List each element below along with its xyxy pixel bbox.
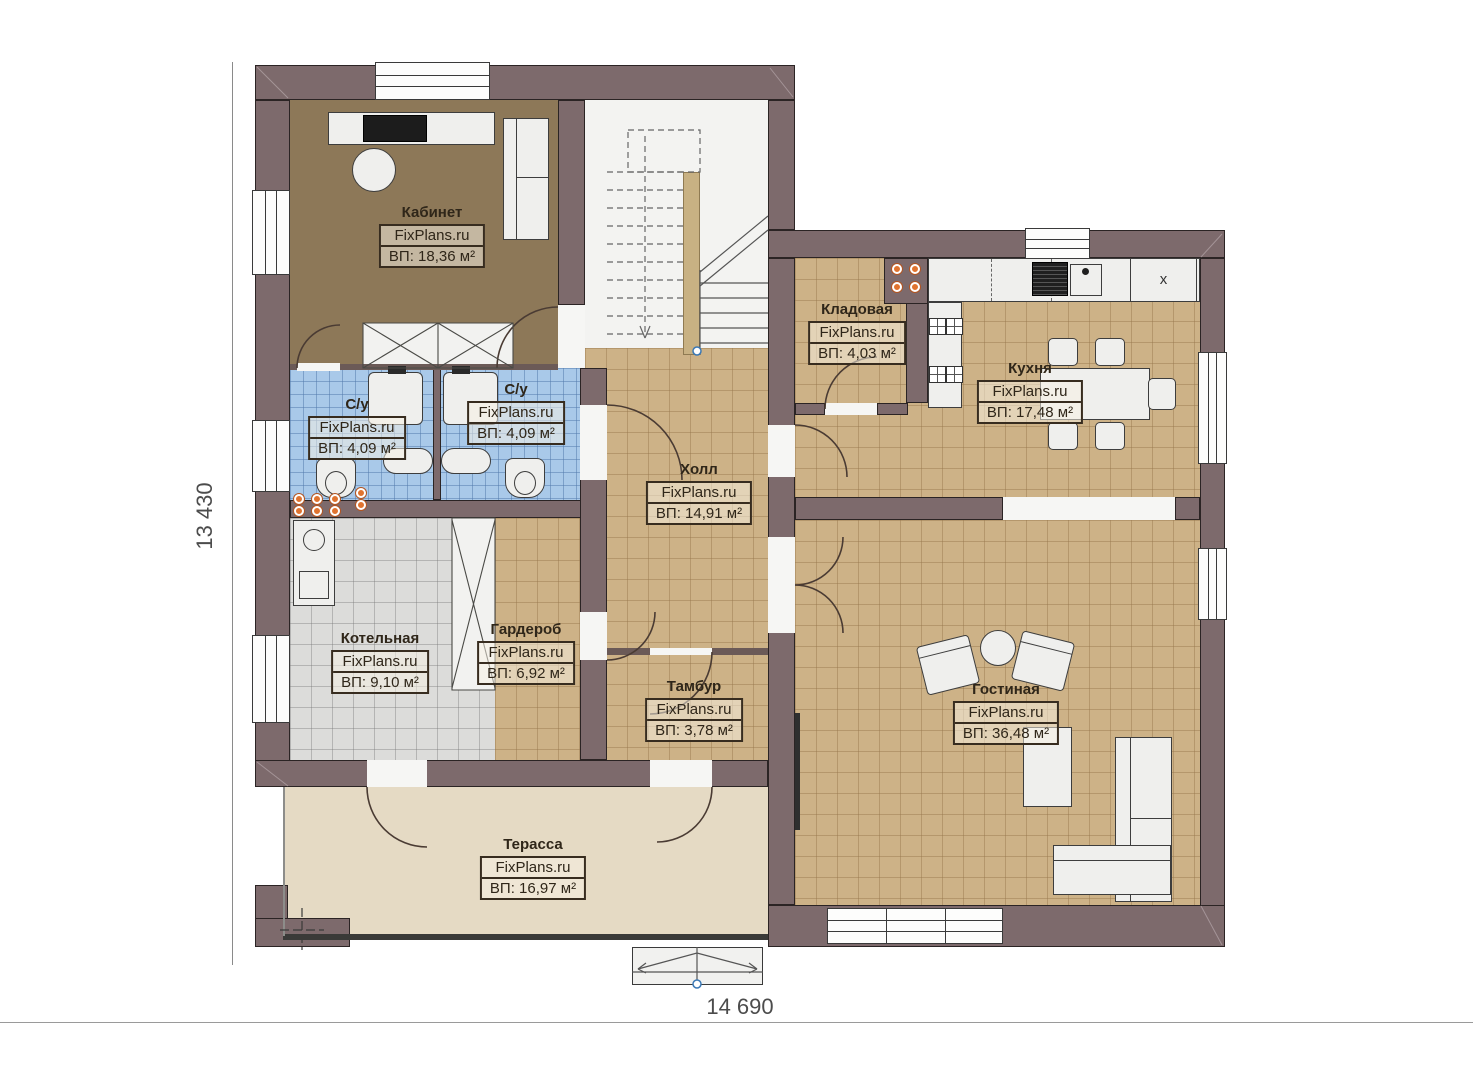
hall-living-door-opening	[768, 537, 795, 633]
room-name: Кухня	[977, 360, 1083, 377]
room-label-office: Кабинет FixPlans.ru ВП: 18,36 м²	[379, 204, 485, 268]
valve-dot	[294, 494, 304, 504]
valve-dot	[356, 500, 366, 510]
valve-dot	[330, 506, 340, 516]
room-info-box: FixPlans.ru ВП: 17,48 м²	[977, 380, 1083, 424]
sofa-bottom	[1053, 845, 1171, 895]
valve-dot	[356, 488, 366, 498]
wall-stair-right-exterior	[768, 100, 795, 230]
wall-storage-bottom-a	[795, 403, 825, 415]
fridge-symbol: x	[1160, 271, 1168, 288]
watermark: FixPlans.ru	[333, 652, 427, 671]
office-sofa	[503, 118, 549, 240]
wall-office-bath-thin-b	[340, 364, 558, 370]
vestibule-door-opening	[650, 648, 712, 655]
boiler-unit	[293, 520, 335, 606]
room-info-box: FixPlans.ru ВП: 3,78 м²	[645, 698, 743, 742]
wall-kitchen-living-a	[795, 497, 1003, 520]
bath2-door-opening	[580, 405, 607, 480]
valve-dot	[330, 494, 340, 504]
room-info-box: FixPlans.ru ВП: 4,03 м²	[808, 321, 906, 365]
toilet-1	[316, 458, 356, 498]
kitchen-living-opening	[1003, 497, 1175, 520]
burner-icon	[892, 264, 902, 274]
room-name: Холл	[646, 461, 752, 478]
wall-office-bath-thin-a	[290, 364, 297, 370]
room-label-vestibule: Тамбур FixPlans.ru ВП: 3,78 м²	[645, 678, 743, 742]
room-area: ВП: 6,92 м²	[479, 662, 573, 683]
watermark: FixPlans.ru	[647, 700, 741, 719]
left-dimension-line	[232, 62, 233, 965]
wardrobe-door-opening	[580, 612, 607, 660]
room-label-hall: Холл FixPlans.ru ВП: 14,91 м²	[646, 461, 752, 525]
room-area: ВП: 4,09 м²	[310, 437, 404, 458]
stairwell-floor	[585, 100, 768, 348]
room-name: Котельная	[331, 630, 429, 647]
oven-icon	[929, 318, 946, 335]
room-name: Кладовая	[808, 301, 906, 318]
terrace-edge-bottom	[283, 934, 768, 940]
watermark: FixPlans.ru	[482, 858, 584, 877]
room-info-box: FixPlans.ru ВП: 6,92 м²	[477, 641, 575, 685]
faucet-icon	[452, 366, 470, 374]
window-mullion	[945, 909, 946, 943]
watermark: FixPlans.ru	[381, 226, 483, 245]
room-name: Терасса	[480, 836, 586, 853]
dining-chair	[1048, 422, 1078, 450]
left-dimension-label: 13 430	[192, 466, 218, 566]
room-info-box: FixPlans.ru ВП: 4,09 м²	[308, 416, 406, 460]
room-info-box: FixPlans.ru ВП: 36,48 м²	[953, 701, 1059, 745]
room-name: Гостиная	[953, 681, 1059, 698]
room-area: ВП: 9,10 м²	[333, 671, 427, 692]
watermark: FixPlans.ru	[955, 703, 1057, 722]
kitchen-sink-basin	[1070, 264, 1102, 296]
stove-block	[884, 258, 928, 304]
window-mullion	[886, 909, 887, 943]
watermark: FixPlans.ru	[648, 483, 750, 502]
room-label-wardrobe: Гардероб FixPlans.ru ВП: 6,92 м²	[477, 621, 575, 685]
room-label-storage: Кладовая FixPlans.ru ВП: 4,03 м²	[808, 301, 906, 365]
bottom-dimension-line	[0, 1022, 1473, 1023]
floor-plan: x	[0, 0, 1473, 1080]
room-info-box: FixPlans.ru ВП: 16,97 м²	[480, 856, 586, 900]
sink-2	[441, 448, 491, 474]
watermark: FixPlans.ru	[310, 418, 404, 437]
watermark: FixPlans.ru	[469, 403, 563, 422]
entry-steps	[632, 947, 763, 985]
room-name: С/у	[467, 381, 565, 398]
oven-icon	[929, 366, 946, 383]
fridge-cabinet: x	[1130, 258, 1197, 302]
watermark: FixPlans.ru	[479, 643, 573, 662]
living-bottom-window	[827, 908, 1003, 944]
room-area: ВП: 14,91 м²	[648, 502, 750, 523]
valve-dot	[312, 494, 322, 504]
room-area: ВП: 17,48 м²	[979, 401, 1081, 422]
valve-dot	[294, 506, 304, 516]
wall-bath-divider	[433, 368, 441, 500]
office-chair	[352, 148, 396, 192]
wall-storage-bottom-b	[877, 403, 908, 415]
boiler-left-window	[252, 635, 290, 723]
room-area: ВП: 4,09 м²	[469, 422, 563, 443]
bottom-dimension-label: 14 690	[690, 994, 790, 1020]
dining-chair	[1148, 378, 1176, 410]
kitchen-right-window	[1198, 352, 1227, 464]
boiler-terrace-door-opening	[367, 760, 427, 787]
room-info-box: FixPlans.ru ВП: 4,09 м²	[467, 401, 565, 445]
bath1-door-opening	[297, 363, 340, 371]
wall-hall-vestibule-a	[607, 648, 650, 655]
terrace-edge-left	[283, 787, 285, 936]
room-label-wc1: С/у FixPlans.ru ВП: 4,09 м²	[308, 396, 406, 460]
oven-icon	[946, 366, 963, 383]
room-area: ВП: 36,48 м²	[955, 722, 1057, 743]
room-info-box: FixPlans.ru ВП: 14,91 м²	[646, 481, 752, 525]
room-label-boiler: Котельная FixPlans.ru ВП: 9,10 м²	[331, 630, 429, 694]
office-printer	[363, 115, 427, 142]
office-left-window	[252, 190, 290, 275]
room-label-terrace: Терасса FixPlans.ru ВП: 16,97 м²	[480, 836, 586, 900]
watermark: FixPlans.ru	[810, 323, 904, 342]
oven-icon	[946, 318, 963, 335]
room-info-box: FixPlans.ru ВП: 9,10 м²	[331, 650, 429, 694]
room-info-box: FixPlans.ru ВП: 18,36 м²	[379, 224, 485, 268]
room-name: Кабинет	[379, 204, 485, 221]
burner-icon	[910, 264, 920, 274]
wall-top-left-section	[255, 65, 795, 100]
dining-chair	[1095, 422, 1125, 450]
valve-dot	[312, 506, 322, 516]
bath-left-window	[252, 420, 290, 492]
room-name: С/у	[308, 396, 406, 413]
watermark: FixPlans.ru	[979, 382, 1081, 401]
dining-chair	[1095, 338, 1125, 366]
room-name: Гардероб	[477, 621, 575, 638]
living-right-window	[1198, 548, 1227, 620]
kitchen-sink-drainer	[1032, 262, 1068, 296]
burner-icon	[910, 282, 920, 292]
room-area: ВП: 16,97 м²	[482, 877, 584, 898]
storage-door-opening	[825, 403, 877, 415]
room-area: ВП: 3,78 м²	[647, 719, 741, 740]
stair-stringer	[683, 172, 700, 355]
office-closet	[363, 323, 513, 368]
room-label-wc2: С/у FixPlans.ru ВП: 4,09 м²	[467, 381, 565, 445]
wall-hall-vestibule-b	[712, 648, 768, 655]
office-door-opening	[558, 305, 585, 368]
side-table	[980, 630, 1016, 666]
burner-icon	[892, 282, 902, 292]
wall-office-right	[558, 100, 585, 305]
room-label-living: Гостиная FixPlans.ru ВП: 36,48 м²	[953, 681, 1059, 745]
front-door-opening	[650, 760, 712, 787]
kitchen-top-window	[1025, 228, 1090, 260]
hall-kitchen-door-opening	[768, 425, 795, 477]
faucet-icon	[388, 366, 406, 374]
toilet-2	[505, 458, 545, 498]
room-area: ВП: 4,03 м²	[810, 342, 904, 363]
wall-kitchen-top	[768, 230, 1225, 258]
room-label-kitchen: Кухня FixPlans.ru ВП: 17,48 м²	[977, 360, 1083, 424]
wall-kitchen-living-b	[1175, 497, 1200, 520]
room-name: Тамбур	[645, 678, 743, 695]
room-area: ВП: 18,36 м²	[381, 245, 483, 266]
office-top-window	[375, 62, 490, 100]
terrace-wall-bottom-left	[255, 918, 350, 947]
tv-icon	[795, 713, 800, 830]
